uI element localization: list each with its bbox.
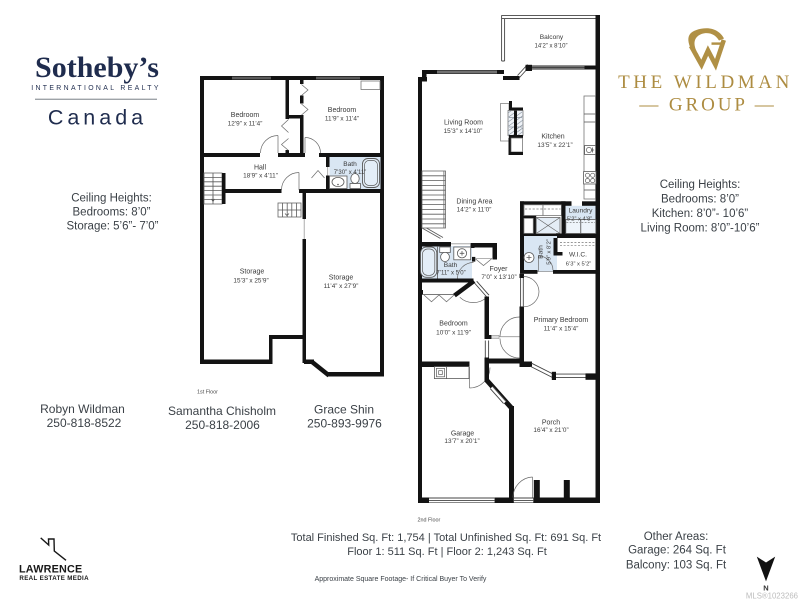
- svg-text:5’9” x 8’2”: 5’9” x 8’2”: [547, 239, 553, 265]
- svg-text:Balcony: 103 Sq. Ft: Balcony: 103 Sq. Ft: [626, 560, 727, 572]
- svg-text:Garage: Garage: [451, 431, 474, 438]
- svg-text:250-818-8522: 250-818-8522: [47, 416, 122, 430]
- svg-text:10’0” x 11’9”: 10’0” x 11’9”: [436, 329, 471, 336]
- svg-text:Approximate Square Footage- If: Approximate Square Footage- If Critical …: [315, 576, 487, 583]
- svg-text:Storage: Storage: [240, 269, 265, 276]
- svg-text:Balcony: Balcony: [540, 34, 564, 41]
- svg-text:Kitchen: Kitchen: [541, 134, 564, 141]
- svg-text:Total Finished Sq. Ft: 1,754 |: Total Finished Sq. Ft: 1,754 | Total Unf…: [291, 532, 601, 544]
- svg-text:REAL ESTATE MEDIA: REAL ESTATE MEDIA: [19, 575, 89, 582]
- svg-text:INTERNATIONAL REALTY: INTERNATIONAL REALTY: [31, 85, 161, 92]
- svg-text:14’2” x 8’10”: 14’2” x 8’10”: [534, 44, 567, 50]
- svg-text:14’2” x 11’0”: 14’2” x 11’0”: [457, 207, 492, 214]
- svg-text:Bedrooms: 8’0”: Bedrooms: 8’0”: [73, 207, 151, 219]
- svg-text:11’4” x 27’9”: 11’4” x 27’9”: [324, 283, 359, 290]
- svg-text:15’3” x 25’9”: 15’3” x 25’9”: [233, 278, 268, 285]
- svg-text:7’30” x 4’11”: 7’30” x 4’11”: [334, 170, 367, 176]
- svg-text:12’9” x 11’4”: 12’9” x 11’4”: [228, 121, 263, 128]
- svg-text:Ceiling Heights:: Ceiling Heights:: [660, 179, 741, 191]
- svg-text:13’5” x 22’1”: 13’5” x 22’1”: [537, 142, 572, 149]
- svg-text:Grace Shin: Grace Shin: [314, 403, 374, 417]
- svg-text:Bedroom: Bedroom: [439, 321, 468, 328]
- svg-text:7’11” x 5’0”: 7’11” x 5’0”: [436, 271, 465, 277]
- svg-text:Bath: Bath: [444, 262, 458, 269]
- svg-text:18’9” x 4’11”: 18’9” x 4’11”: [243, 173, 278, 180]
- svg-text:Laundry: Laundry: [569, 208, 594, 215]
- svg-text:Sotheby’s: Sotheby’s: [35, 51, 159, 84]
- svg-text:W.I.C.: W.I.C.: [569, 252, 587, 259]
- svg-text:LAWRENCE: LAWRENCE: [19, 564, 82, 576]
- svg-text:Floor 1: 511 Sq. Ft | Floor 2:: Floor 1: 511 Sq. Ft | Floor 2: 1,243 Sq.…: [347, 546, 547, 558]
- svg-text:Other Areas:: Other Areas:: [644, 531, 709, 543]
- svg-text:5’2” x 4’8”: 5’2” x 4’8”: [567, 217, 593, 223]
- svg-text:Bedroom: Bedroom: [328, 107, 357, 114]
- svg-text:MLS®1023266: MLS®1023266: [746, 592, 798, 600]
- svg-text:Garage: 264 Sq. Ft: Garage: 264 Sq. Ft: [628, 545, 727, 557]
- svg-text:Ceiling Heights:: Ceiling Heights:: [71, 193, 152, 205]
- svg-text:Primary Bedroom: Primary Bedroom: [534, 317, 589, 324]
- svg-text:Foyer: Foyer: [490, 266, 509, 273]
- svg-text:1st Floor: 1st Floor: [197, 390, 218, 396]
- svg-text:11’9” x 11’4”: 11’9” x 11’4”: [325, 116, 359, 123]
- svg-text:6’3” x 5’2”: 6’3” x 5’2”: [566, 262, 592, 268]
- svg-text:THE WILDMAN: THE WILDMAN: [618, 72, 793, 93]
- svg-text:250-818-2006: 250-818-2006: [185, 418, 260, 432]
- svg-text:7’0” x 13’10”: 7’0” x 13’10”: [481, 274, 516, 281]
- svg-text:16’4” x 21’0”: 16’4” x 21’0”: [533, 427, 568, 434]
- svg-text:Bedrooms: 8’0”: Bedrooms: 8’0”: [661, 194, 739, 206]
- svg-text:11’4” x 15’4”: 11’4” x 15’4”: [544, 326, 579, 333]
- svg-text:250-893-9976: 250-893-9976: [307, 417, 382, 431]
- svg-text:Kitchen: 8’0”- 10’6”: Kitchen: 8’0”- 10’6”: [652, 208, 749, 220]
- svg-text:2nd Floor: 2nd Floor: [418, 518, 441, 524]
- svg-text:Robyn Wildman: Robyn Wildman: [40, 402, 125, 416]
- svg-text:— GROUP —: — GROUP —: [638, 95, 776, 116]
- svg-text:Storage: 5’6”- 7’0”: Storage: 5’6”- 7’0”: [66, 221, 158, 233]
- svg-text:Bath: Bath: [343, 161, 357, 168]
- svg-text:Bath: Bath: [538, 245, 545, 259]
- svg-text:Living Room: Living Room: [444, 120, 483, 127]
- svg-text:Storage: Storage: [329, 275, 354, 282]
- svg-text:Living Room: 8’0”-10’6”: Living Room: 8’0”-10’6”: [641, 223, 760, 235]
- svg-text:Samantha Chisholm: Samantha Chisholm: [168, 404, 276, 418]
- svg-text:Hall: Hall: [254, 165, 267, 172]
- svg-text:Dining Area: Dining Area: [456, 199, 492, 206]
- svg-text:Canada: Canada: [48, 106, 147, 130]
- svg-text:Bedroom: Bedroom: [231, 112, 260, 119]
- svg-text:Porch: Porch: [542, 420, 560, 427]
- svg-text:13’7” x 20’1”: 13’7” x 20’1”: [444, 438, 479, 445]
- svg-text:15’3” x 14’10”: 15’3” x 14’10”: [444, 128, 483, 135]
